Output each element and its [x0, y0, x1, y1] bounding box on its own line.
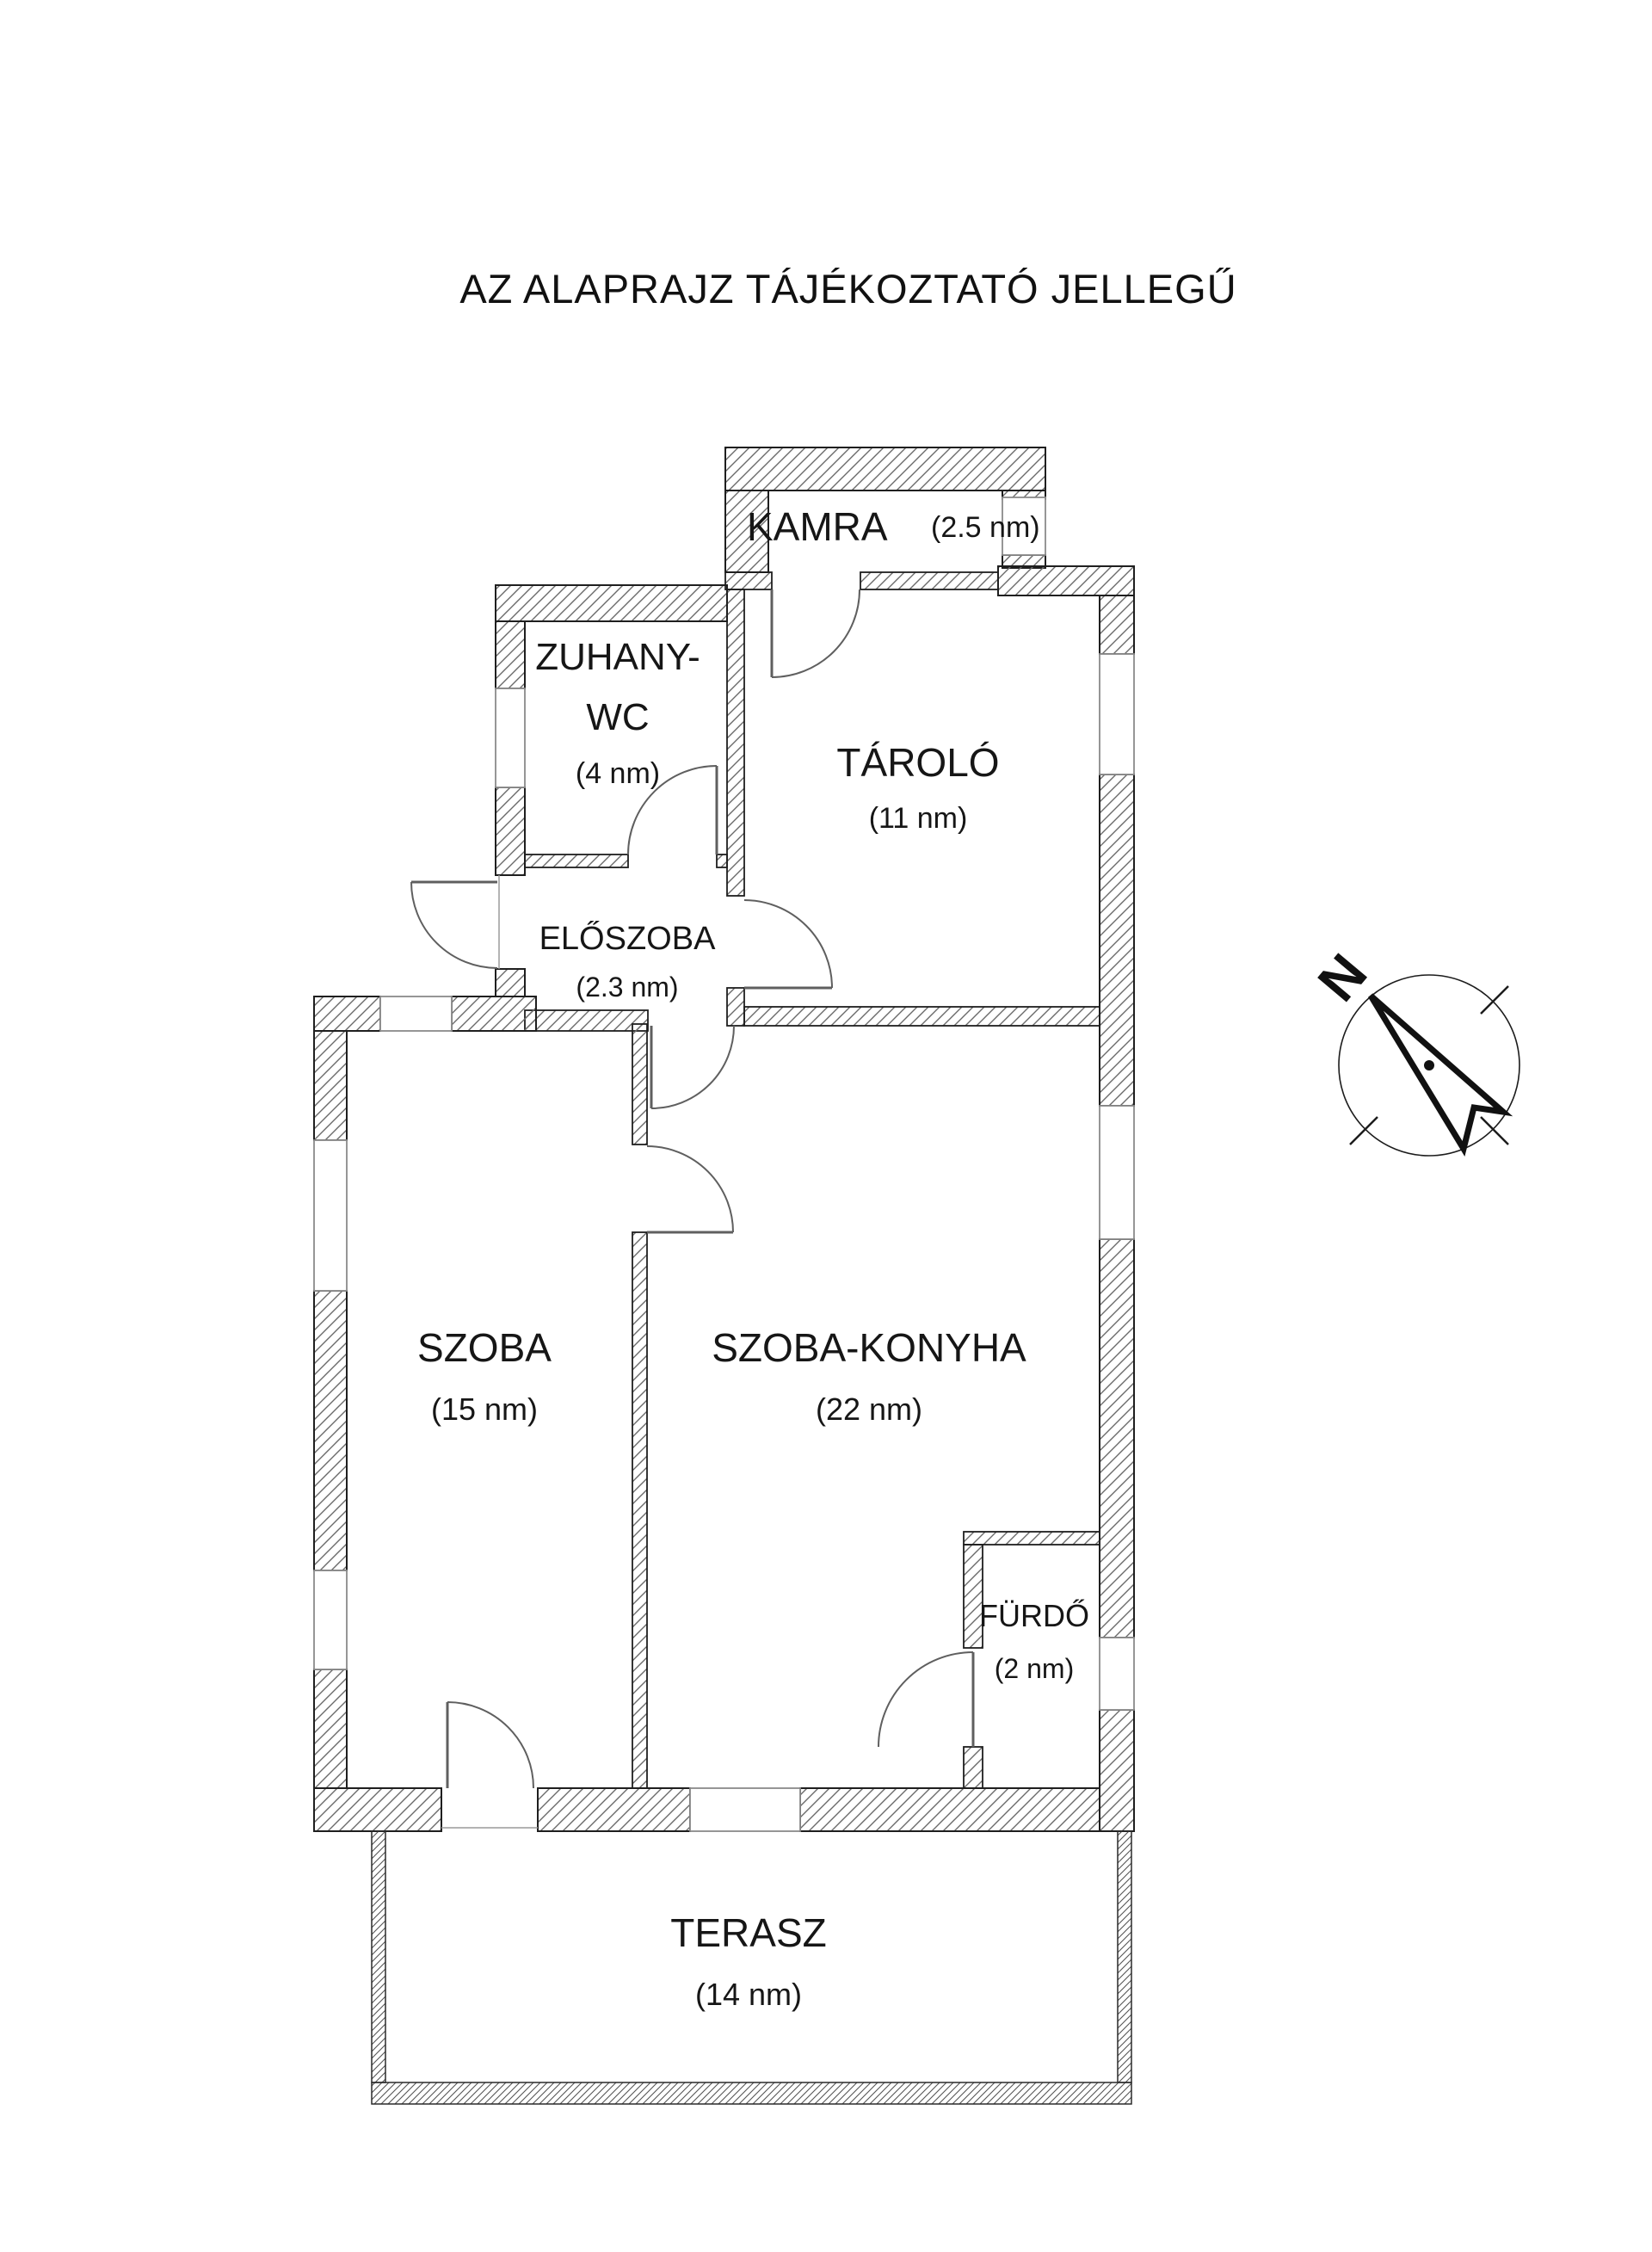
wall-segment	[1100, 1710, 1134, 1831]
wall-segment	[372, 2082, 1131, 2104]
wall-segment	[452, 996, 536, 1031]
wall-segment	[314, 996, 380, 1031]
wall-segment	[1100, 1239, 1134, 1638]
room-label-kamra: KAMRA	[747, 504, 888, 549]
window-opening	[314, 1570, 347, 1669]
wall-segment	[314, 1291, 347, 1570]
window-opening	[1100, 1638, 1134, 1710]
wall-segment	[372, 1831, 385, 2082]
room-label-zuhany-wc-line2: WC	[586, 696, 649, 738]
window-opening	[1100, 1106, 1134, 1239]
window-opening	[690, 1788, 800, 1831]
floor-plan-canvas: AZ ALAPRAJZ TÁJÉKOZTATÓ JELLEGŰ	[0, 0, 1652, 2252]
wall-segment	[727, 589, 744, 896]
room-area-furdo: (2 nm)	[995, 1653, 1074, 1684]
room-label-tarolo: TÁROLÓ	[836, 740, 999, 785]
wall-segment	[860, 572, 998, 589]
room-label-terasz: TERASZ	[670, 1910, 826, 1955]
wall-segment	[538, 1788, 690, 1831]
room-area-szoba: (15 nm)	[431, 1391, 538, 1427]
wall-segment	[964, 1532, 1100, 1545]
room-area-eloszoba: (2.3 nm)	[576, 972, 678, 1003]
wall-segment	[1100, 595, 1134, 654]
wall-segment	[632, 1232, 647, 1788]
room-label-furdo: FÜRDŐ	[979, 1598, 1089, 1633]
wall-segment	[725, 572, 772, 589]
room-area-tarolo: (11 nm)	[869, 802, 968, 835]
wall-segment	[727, 988, 744, 1026]
wall-segment	[525, 855, 628, 867]
wall-segment	[1100, 774, 1134, 1106]
room-area-szoba-konyha: (22 nm)	[816, 1391, 922, 1427]
room-label-szoba-konyha: SZOBA-KONYHA	[712, 1325, 1026, 1370]
wall-segment	[717, 855, 727, 867]
wall-segment	[496, 621, 525, 688]
room-label-eloszoba: ELŐSZOBA	[539, 920, 716, 957]
window-opening	[314, 1140, 347, 1291]
wall-segment	[800, 1788, 1100, 1831]
wall-segment	[314, 1669, 347, 1788]
wall-segment	[725, 447, 1045, 491]
wall-segment	[964, 1747, 983, 1788]
wall-segment	[496, 585, 727, 621]
room-label-zuhany-wc-line1: ZUHANY-	[535, 636, 700, 678]
room-area-zuhany-wc: (4 nm)	[576, 757, 660, 790]
window-opening	[380, 996, 452, 1031]
wall-segment	[496, 969, 525, 996]
wall-segment	[1118, 1831, 1131, 2082]
window-opening	[1100, 654, 1134, 774]
window-opening	[496, 688, 525, 787]
floor-plan-page: AZ ALAPRAJZ TÁJÉKOZTATÓ JELLEGŰ	[0, 0, 1652, 2252]
wall-segment	[744, 1007, 1100, 1026]
room-area-terasz: (14 nm)	[695, 1977, 802, 2012]
wall-segment	[314, 1788, 441, 1831]
wall-segment	[632, 1024, 647, 1145]
room-label-szoba: SZOBA	[417, 1325, 552, 1370]
wall-segment	[314, 1031, 347, 1140]
wall-segment	[525, 1010, 648, 1031]
compass-center-dot	[1424, 1060, 1434, 1070]
wall-segment	[496, 787, 525, 875]
room-area-kamra: (2.5 nm)	[931, 511, 1040, 544]
page-title: AZ ALAPRAJZ TÁJÉKOZTATÓ JELLEGŰ	[459, 266, 1236, 312]
wall-segment	[998, 566, 1134, 595]
